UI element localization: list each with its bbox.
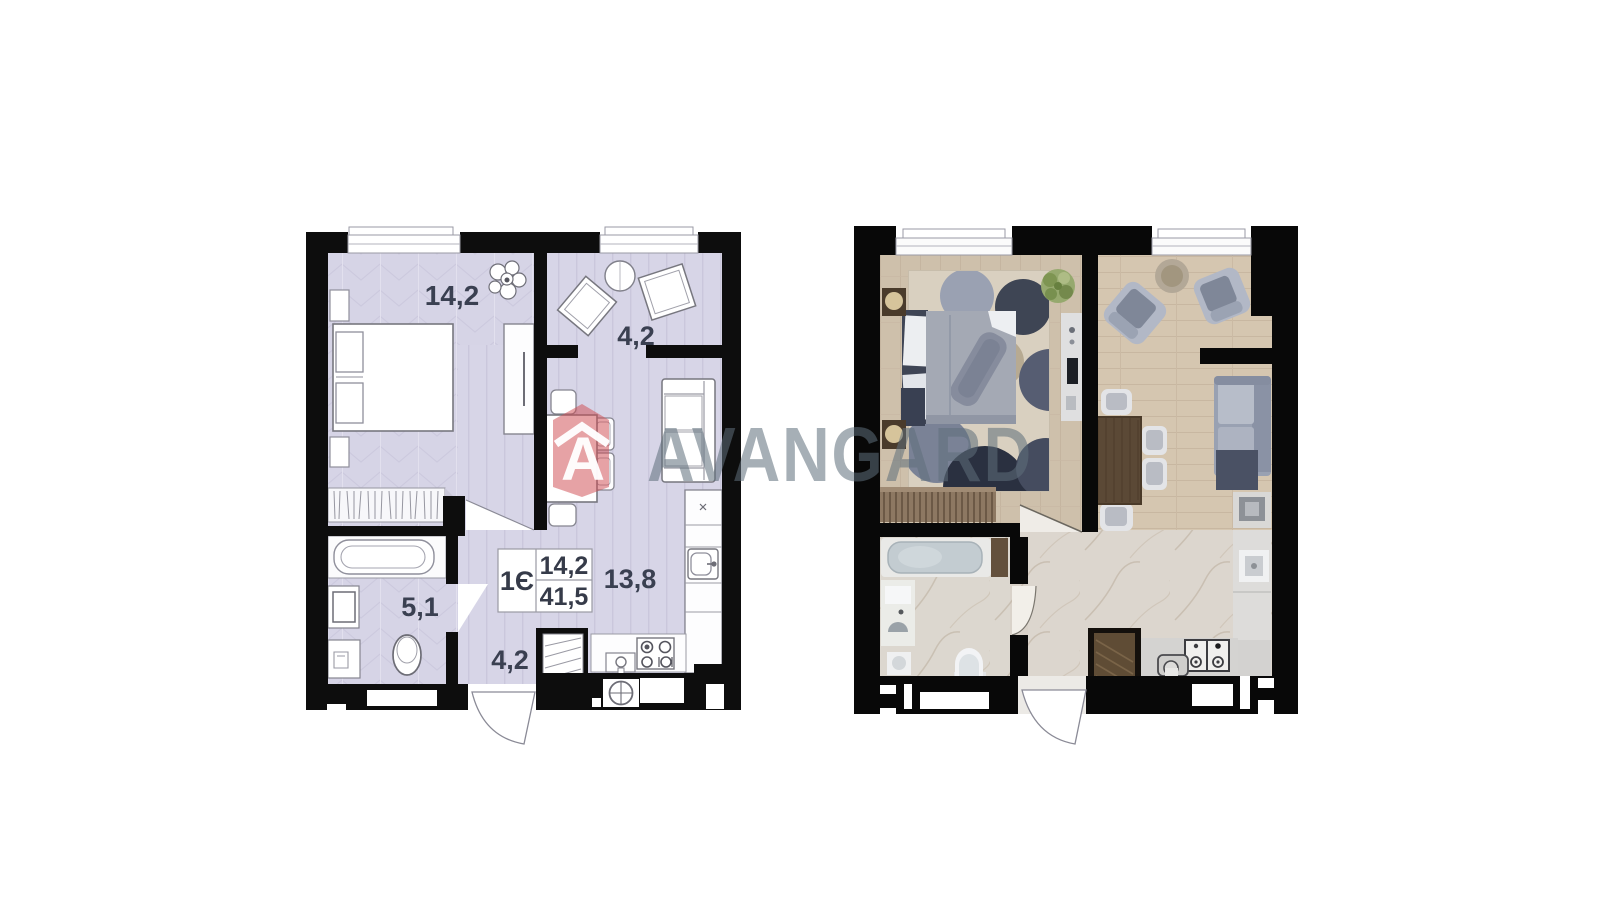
svg-text:1Є: 1Є (500, 566, 534, 596)
svg-text:5,1: 5,1 (401, 592, 439, 622)
svg-text:13,8: 13,8 (604, 564, 657, 594)
svg-text:AVANGARD: AVANGARD (647, 412, 1033, 498)
svg-text:4,2: 4,2 (491, 645, 529, 675)
svg-text:4,2: 4,2 (617, 321, 655, 351)
svg-text:41,5: 41,5 (540, 583, 589, 611)
svg-text:14,2: 14,2 (425, 280, 480, 311)
svg-text:14,2: 14,2 (540, 552, 589, 580)
svg-text:A: A (561, 425, 605, 493)
